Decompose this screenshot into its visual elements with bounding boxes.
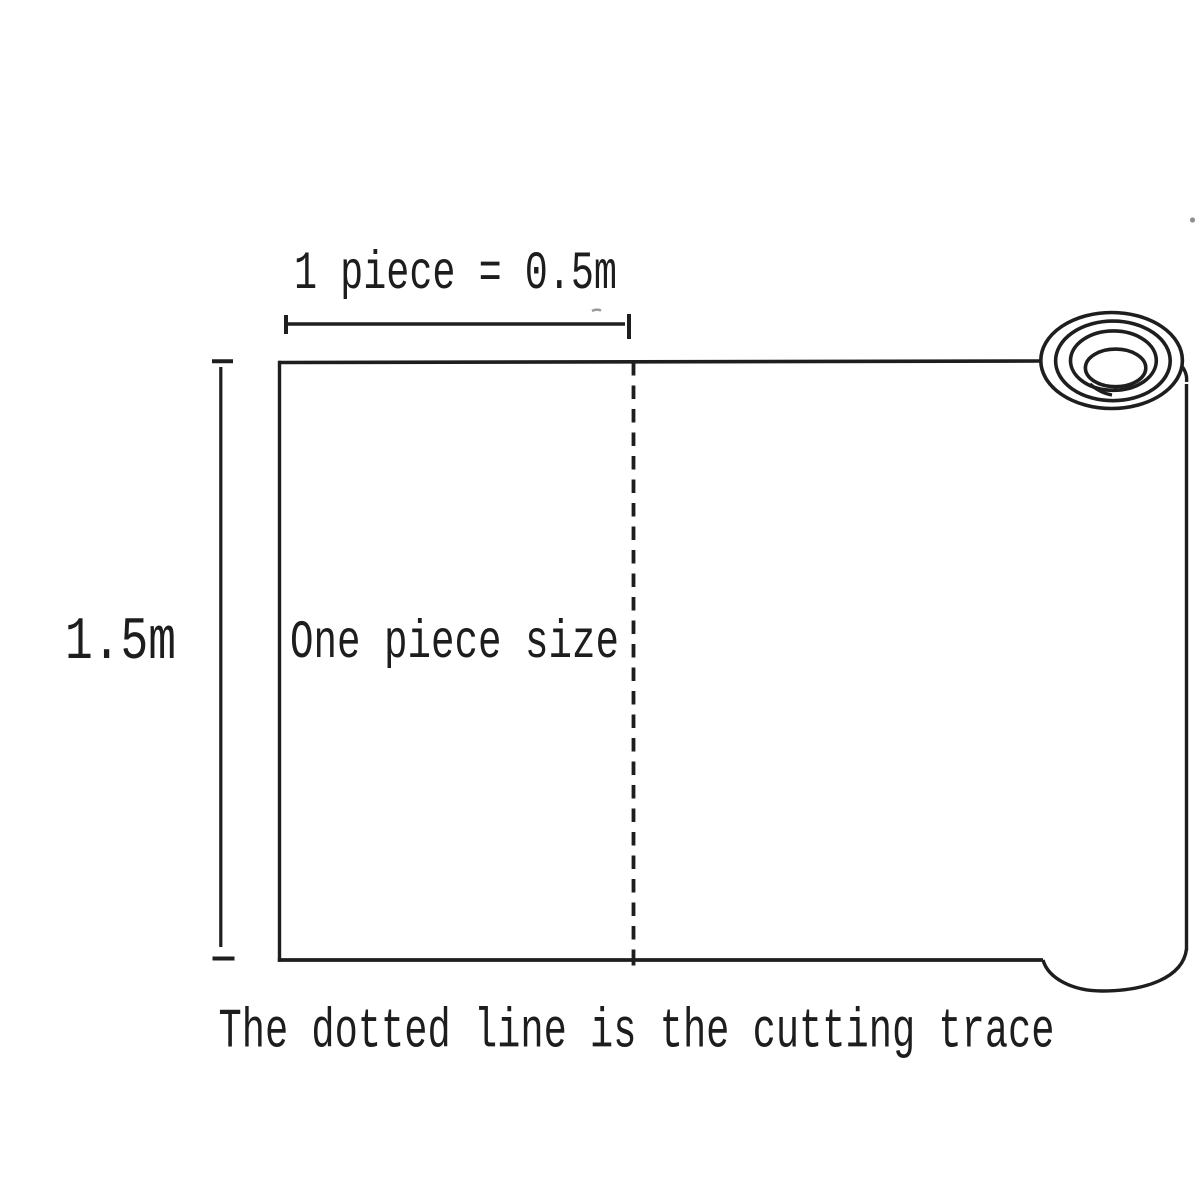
svg-text:One piece size: One piece size [290, 613, 619, 674]
svg-text:The dotted line is the cutting: The dotted line is the cutting trace [219, 1000, 1055, 1064]
svg-text:1 piece = 0.5m: 1 piece = 0.5m [294, 244, 617, 305]
svg-text:1.5m: 1.5m [65, 609, 176, 677]
